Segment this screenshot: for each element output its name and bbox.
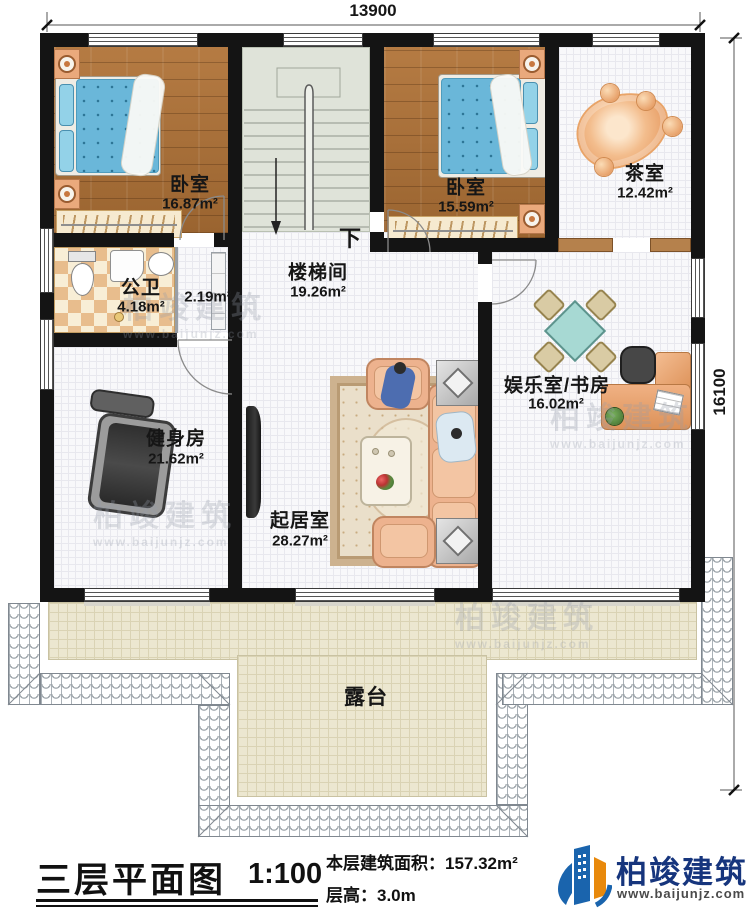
terrace-border-left-column [8,603,40,705]
window-study-right-lower [691,343,705,430]
toilet-tank [68,251,96,262]
tea-stool [637,92,655,110]
wall-bottom-pier [435,588,492,602]
window-tea-top [592,33,660,47]
wall-bottom-pier [210,588,295,602]
wall-bedroom2-bottom [384,238,545,252]
gym-area: 21.62m² [148,451,204,468]
terrace-border-right-band [502,673,733,705]
office-chair [620,346,656,384]
coffee-table [360,436,412,506]
nightstand1-top [54,49,80,79]
wardrobe-rod [61,224,177,226]
dimension-top: 13900 [349,1,396,21]
dimension-right: 16100 [710,368,730,415]
wall-bottom-pier [680,588,705,602]
window-study-right-upper [691,258,705,318]
wall-left [40,33,54,602]
armchair-bottom-cushion [380,524,428,558]
terrace-floor-lobe [237,655,487,797]
bedroom2-area: 15.59m² [438,199,494,216]
wall-stair-right-stub [370,232,384,252]
wall-tea-bottom-left [558,238,613,252]
wall-study-left-pier [478,252,492,264]
wall-bathroom-bottom [40,333,177,347]
bed1-pillow-bottom [59,130,74,172]
floor-height-line: 层高：3.0m [326,881,416,906]
person-head [394,362,406,374]
table-cup [388,450,395,457]
wall-bedroom1-right [228,47,242,233]
lamp-icon [523,55,541,73]
terrace-border-left-band [40,673,230,705]
tea-stool [663,117,682,136]
terrace-border-right-column [701,557,733,705]
window-bathroom-left [40,228,54,293]
nightstand2-top [519,49,545,79]
window-stair-top [283,33,363,47]
terrace-border-bottom-band [198,805,528,837]
wall-living-study [478,302,492,588]
window-gym-left [40,319,54,390]
lamp-icon [523,210,541,228]
living-room-area: 28.27m² [272,533,328,550]
bedroom2-label: 卧室 [446,173,486,200]
terrace-label: 露台 [344,681,388,711]
wall-bathroom-bottom-pier [230,333,242,347]
person-head [451,428,462,439]
tea-stool [595,158,613,176]
tea-room-label: 茶室 [625,159,665,186]
bed2-pillow-top [523,82,538,124]
door-sill [84,602,210,606]
title-underline-2 [36,905,318,907]
tea-room-area: 12.42m² [617,185,673,202]
terrace-floor-upper [48,602,697,660]
bedroom1-label: 卧室 [170,170,210,197]
bedroom1-area: 16.87m² [162,196,218,213]
gym-label: 健身房 [146,424,206,451]
page-title-scale: 1:100 [248,858,322,891]
logo-icon [552,843,612,909]
staircase-floor [242,47,370,232]
window-bedroom1-top [88,33,198,47]
wall-stair-right [370,47,384,212]
table-cup [372,448,379,455]
logo-url: www.baijunjz.com [617,886,745,901]
nightstand2-bottom [519,204,545,234]
bed1-pillow-top [59,84,74,126]
wall-bedroom2-right [545,47,559,252]
lamp-icon [58,185,76,203]
bathroom-area: 4.18m² [117,299,165,316]
door-sill [295,602,435,606]
page-title: 三层平面图 [36,852,226,903]
wall-gym-right [228,347,242,588]
stair-down-label: 下 [339,221,361,253]
wardrobe-rod [393,230,513,232]
flower-vase [376,474,394,490]
title-underline-1 [36,899,318,902]
wall-bottom-pier [40,588,84,602]
wall-bedroom1-bottom [54,233,174,247]
floor-area-line: 本层建筑面积：157.32m² [326,849,518,874]
slider-living-terrace [295,588,435,602]
living-room-label: 起居室 [270,506,330,533]
stairhall-label: 楼梯间 [288,258,348,285]
window-bedroom2-top [433,33,540,47]
window-gym-bottom [84,588,210,602]
door-sill [492,602,680,606]
tv-screen [246,406,261,518]
bathroom-label: 公卫 [121,273,161,300]
desk-plant [606,408,623,425]
wall-bedroom1-bottom-pier [214,233,242,247]
stairhall-area: 19.26m² [290,284,346,301]
lamp-icon [58,55,76,73]
wall-tea-bottom-right [650,238,691,252]
closet-area: 2.19m² [184,289,232,306]
window-study-bottom [492,588,680,602]
study-label: 娱乐室/书房 [504,371,610,398]
study-area: 16.02m² [528,396,584,413]
floor-plan-canvas: 13900 16100 柏竣建筑 www.baijunjz.com 柏竣建筑 w… [0,0,750,915]
nightstand1-bottom [54,179,80,209]
tea-stool [601,84,619,102]
